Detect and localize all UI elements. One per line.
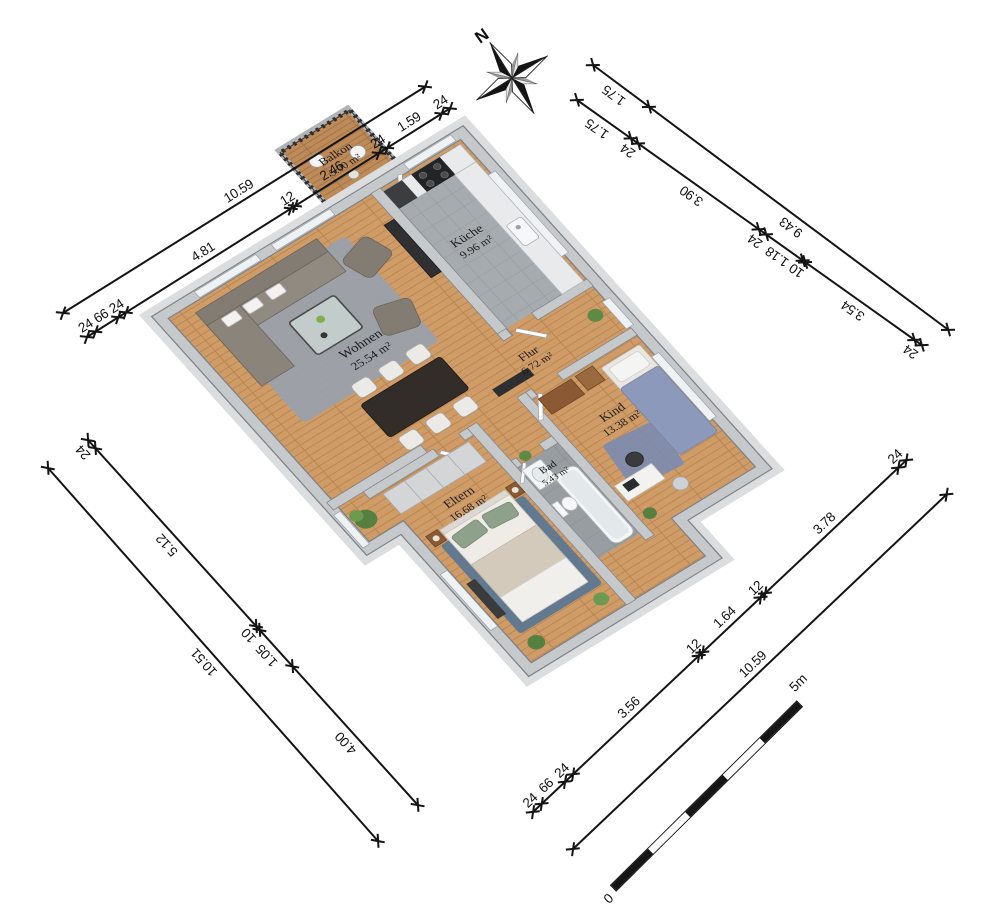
dimension-label: 1.05: [254, 642, 281, 669]
dimension-label: 1.64: [711, 604, 738, 631]
floorplan-3d: Balkon 5.00 m² Küche 9.96 m² Wohnen 25.5…: [94, 62, 816, 708]
scale-segment: [648, 812, 690, 854]
dimension-line-top-right-outer: 1.759.43: [593, 65, 948, 330]
compass-icon: N: [438, 18, 578, 128]
dimension-label: 10: [239, 626, 259, 646]
dimension-label: 3.56: [615, 694, 642, 721]
scale-segment: [723, 738, 765, 780]
scale-bar: 0 5m: [610, 700, 803, 891]
compass-star-main-points: [454, 20, 570, 128]
scale-start-label: 0: [601, 891, 616, 906]
dimension-label: 4.00: [333, 730, 360, 757]
scale-segment: [685, 775, 727, 817]
dimension-label: 10: [787, 261, 806, 280]
dimension-label: 5.12: [154, 531, 181, 558]
dimension-label: 24: [746, 232, 765, 251]
floorplan-scene: N: [0, 0, 1000, 921]
dimension-label: 10.51: [189, 646, 220, 679]
scale-end-label: 5m: [787, 672, 810, 695]
compass-rose: N: [438, 18, 578, 128]
dimension-label: 24: [73, 442, 93, 462]
compass-north-label: N: [471, 25, 492, 48]
scale-segment: [611, 849, 653, 891]
scale-segment: [760, 702, 802, 744]
dimension-label: 10.59: [736, 648, 768, 680]
dimension-label: 24: [618, 141, 637, 160]
dimension-label: 24: [902, 342, 921, 361]
